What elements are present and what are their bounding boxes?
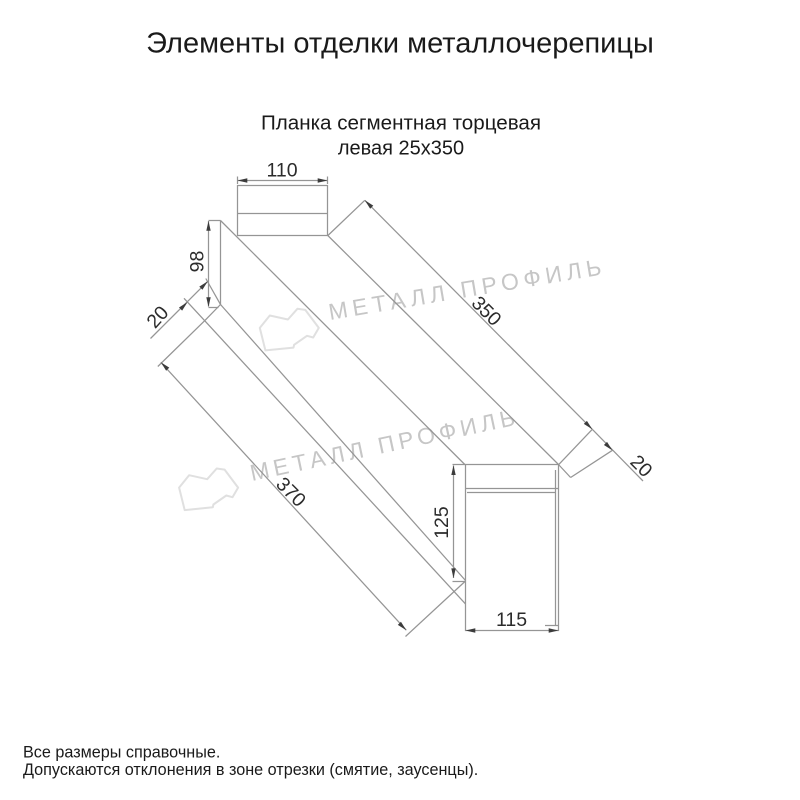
svg-text:левая 25х350: левая 25х350	[338, 138, 464, 160]
svg-text:Планка сегментная торцевая: Планка сегментная торцевая	[261, 112, 541, 135]
svg-text:98: 98	[186, 251, 208, 273]
svg-text:125: 125	[431, 506, 453, 539]
svg-text:Все размеры справочные.: Все размеры справочные.	[23, 744, 220, 762]
svg-text:Допускаются отклонения в зоне: Допускаются отклонения в зоне отрезки (с…	[23, 761, 478, 779]
svg-text:115: 115	[496, 609, 527, 631]
svg-text:Элементы отделки металлочерепи: Элементы отделки металлочерепицы	[146, 28, 654, 60]
svg-text:110: 110	[266, 160, 297, 182]
